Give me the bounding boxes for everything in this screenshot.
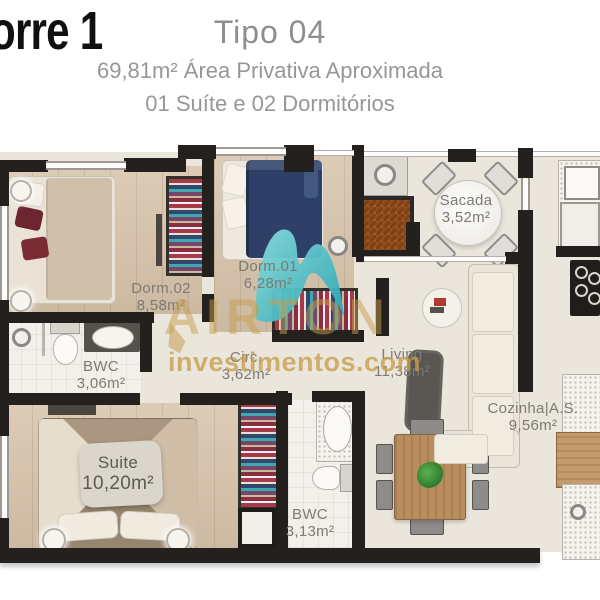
wall bbox=[352, 145, 364, 257]
plan-header: Tipo 04 69,81m² Área Privativa Aproximad… bbox=[0, 14, 540, 117]
cooktop-burner bbox=[588, 272, 600, 285]
window bbox=[0, 206, 9, 300]
cooktop-burner bbox=[575, 266, 588, 279]
coffee-table-book bbox=[430, 307, 444, 313]
balcony-rail bbox=[364, 151, 448, 157]
suite-shower-box bbox=[238, 508, 276, 548]
window bbox=[314, 150, 354, 156]
room-label-cozinha: Cozinha|A.S. 9,56m² bbox=[488, 400, 579, 434]
kitchen-appliance bbox=[564, 166, 600, 200]
dorm01-accent-pillow bbox=[304, 168, 318, 198]
window bbox=[533, 151, 600, 157]
room-area: 6,28m² bbox=[238, 275, 298, 292]
wall bbox=[448, 149, 476, 162]
niche-sink bbox=[374, 164, 396, 186]
window bbox=[216, 147, 286, 156]
window bbox=[46, 161, 126, 170]
sink-basin bbox=[92, 326, 134, 349]
room-area: 3,06m² bbox=[77, 375, 126, 392]
room-name: Suite bbox=[82, 452, 154, 473]
shower-partition bbox=[42, 320, 45, 356]
kitchen-appliance bbox=[560, 202, 600, 248]
room-config-line: 01 Suíte e 02 Dormitórios bbox=[0, 91, 540, 117]
dining-chair bbox=[376, 480, 393, 510]
dorm02-pillow-red bbox=[21, 236, 50, 261]
bwc-suite-toilet bbox=[312, 466, 340, 490]
wall bbox=[0, 160, 9, 206]
toilet-bowl bbox=[53, 334, 78, 365]
room-label-dorm01: Dorm.01 6,28m² bbox=[238, 258, 298, 292]
kitchen-wood-counter bbox=[556, 432, 600, 488]
wall bbox=[352, 391, 365, 551]
suite-pillow bbox=[57, 510, 119, 542]
dorm02-lamp bbox=[10, 180, 32, 202]
sofa-cushion bbox=[472, 334, 514, 394]
room-area: 3,52m² bbox=[440, 209, 493, 226]
dining-chair bbox=[410, 518, 444, 535]
kitchen-faucet bbox=[570, 504, 586, 520]
room-name: Cozinha|A.S. bbox=[488, 400, 579, 417]
window bbox=[0, 436, 9, 518]
balcony-rail bbox=[476, 151, 518, 157]
kitchen-sink-counter bbox=[562, 484, 600, 560]
plan-type-title: Tipo 04 bbox=[0, 14, 540, 51]
room-label-sacada: Sacada 3,52m² bbox=[440, 192, 493, 226]
wall bbox=[556, 246, 600, 257]
floorplan-page: orre 1 Tipo 04 69,81m² Área Privativa Ap… bbox=[0, 0, 600, 600]
shower-head bbox=[12, 328, 31, 347]
wall bbox=[518, 148, 533, 178]
dining-chair bbox=[472, 480, 489, 510]
glass-door bbox=[364, 256, 506, 262]
room-name: BWC bbox=[77, 358, 126, 375]
sofa-cushion bbox=[472, 272, 514, 332]
wall bbox=[0, 548, 540, 563]
wall bbox=[0, 393, 140, 405]
room-area: 9,56m² bbox=[488, 417, 579, 434]
room-name: Sacada bbox=[440, 192, 493, 209]
cooktop-burner bbox=[588, 292, 600, 305]
cooktop-burner bbox=[575, 284, 588, 297]
dining-chair bbox=[376, 444, 393, 474]
room-label-bwc-suite: BWC 3,13m² bbox=[286, 506, 335, 540]
wall bbox=[0, 400, 9, 436]
watermark-site: investimentos.com bbox=[168, 349, 421, 376]
wall bbox=[518, 210, 533, 392]
room-area: 10,20m² bbox=[82, 473, 154, 494]
room-label-bwc-social: BWC 3,06m² bbox=[77, 358, 126, 392]
wall bbox=[124, 158, 186, 172]
watermark-brand: AIRTON bbox=[164, 292, 391, 342]
wall bbox=[140, 318, 152, 372]
sofa-cushion bbox=[434, 434, 488, 464]
room-label-suite: Suite 10,20m² bbox=[82, 452, 154, 494]
suite-window-sill bbox=[48, 405, 96, 415]
wall bbox=[284, 145, 314, 172]
private-area-line: 69,81m² Área Privativa Aproximada bbox=[0, 58, 540, 84]
toilet-tank bbox=[50, 322, 80, 334]
dorm02-lamp bbox=[10, 290, 32, 312]
bwc-suite-basin bbox=[323, 406, 352, 452]
room-name: Dorm.01 bbox=[238, 258, 298, 275]
wall bbox=[505, 252, 519, 264]
window bbox=[521, 178, 530, 210]
coffee-table-book bbox=[434, 298, 446, 306]
wall bbox=[202, 155, 214, 277]
room-name: BWC bbox=[286, 506, 335, 523]
dorm02-blanket bbox=[46, 178, 112, 300]
room-area: 3,13m² bbox=[286, 523, 335, 540]
dorm02-panel bbox=[156, 214, 162, 266]
